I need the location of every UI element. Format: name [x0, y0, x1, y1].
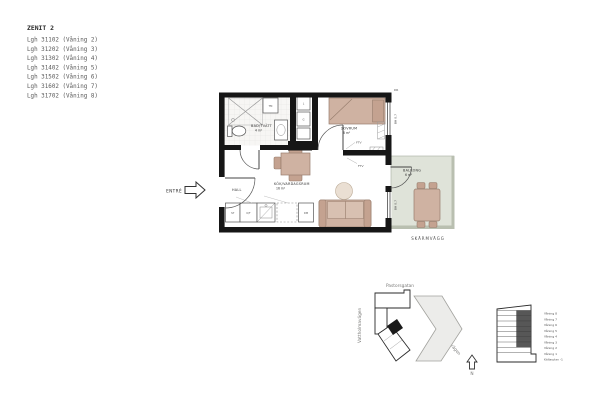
- tv-outlet-label: FTV: [358, 164, 365, 168]
- highlighted-floors: [517, 311, 532, 348]
- site-building-main: [375, 290, 410, 361]
- door-mark-label: DR: [394, 88, 398, 92]
- sill-height-label: BH 0,7: [394, 200, 398, 210]
- balcony-chair: [417, 222, 425, 228]
- washbasin: [275, 120, 288, 140]
- floor-label: Våning 7: [544, 316, 557, 321]
- bedroom-window: [386, 103, 392, 136]
- washing-machine: TM: [263, 98, 278, 113]
- kitchen-sink: [257, 203, 275, 222]
- cleaning-cabinet-label: ST: [231, 211, 235, 215]
- dishwasher: DM: [299, 203, 314, 222]
- floor-label: Våning 4: [544, 334, 557, 339]
- floor-label: Våning 6: [544, 322, 557, 327]
- bathroom: TM: [225, 98, 291, 146]
- kitchen-living-area: 16 m²: [276, 187, 286, 191]
- optional-unit: [277, 203, 297, 222]
- toilet: [228, 126, 246, 137]
- balcony-chair: [429, 183, 437, 189]
- site-plan: Pastorsgatan Vattholmavägen Åbyvägen N: [357, 283, 477, 377]
- dishwasher-label: DM: [304, 211, 308, 215]
- bedroom-label: SOVRUM: [341, 127, 357, 131]
- legend-apartment: Lgh 31302 (Våning 4): [27, 55, 98, 62]
- balcony-label: BALKONG: [403, 169, 421, 173]
- sill-height-label: BH 0,7: [394, 114, 398, 124]
- legend-apartment: Lgh 31202 (Våning 3): [27, 46, 98, 53]
- floor-label: Våning 5: [544, 328, 557, 333]
- elevation-floor-labels: Våning 8 Våning 7 Våning 6 Våning 5 Våni…: [544, 311, 563, 362]
- balcony-area: 6 m²: [405, 173, 413, 177]
- hall-label: HALL: [232, 188, 242, 192]
- kitchen-living-label: KÖK/VARDAGSRUM: [274, 181, 310, 186]
- bathroom-door: [240, 150, 259, 169]
- floor-label: Våning 1: [544, 351, 557, 356]
- tv-outlet-label: FTV: [356, 141, 363, 145]
- balcony-table: [414, 189, 440, 221]
- north-arrow: N: [467, 355, 477, 377]
- legend-apartment: Lgh 31102 (Våning 2): [27, 37, 98, 44]
- floor-label: Våning 3: [544, 339, 557, 344]
- balcony-chair: [417, 183, 425, 189]
- entrance-label: ENTRÉ: [166, 189, 182, 194]
- balcony-chair: [429, 222, 437, 228]
- legend-apartment: Lgh 31702 (Våning 8): [27, 92, 98, 99]
- dining-table: [274, 148, 310, 182]
- bed: [329, 98, 385, 124]
- north-arrow-icon: [467, 355, 477, 369]
- building-elevation: Våning 8 Våning 7 Våning 6 Våning 5 Våni…: [497, 305, 563, 362]
- wardrobe-label: G: [302, 118, 304, 122]
- legend-apartment: Lgh 31402 (Våning 5): [27, 64, 98, 71]
- bedroom-area: 8 m²: [343, 131, 351, 135]
- north-label: N: [470, 371, 473, 377]
- screen-wall-label: SKÄRMVÄGG: [411, 236, 445, 241]
- street-west-label: Vattholmavägen: [357, 307, 363, 343]
- apartment-legend: ZENIT 2 Lgh 31102 (Våning 2) Lgh 31202 (…: [27, 24, 98, 99]
- closet-strip: L G: [297, 96, 310, 139]
- sofa: [319, 200, 371, 227]
- floor-label: Våning 2: [544, 345, 557, 350]
- entrance-marker: ENTRÉ: [166, 182, 205, 198]
- balcony-screen-right: [452, 156, 455, 228]
- floor-plan: TM L G ST K/F DM: [166, 88, 454, 241]
- floor-label: Källarplan -1: [544, 358, 563, 362]
- floorplan-sheet: ZENIT 2 Lgh 31102 (Våning 2) Lgh 31202 (…: [0, 0, 600, 400]
- street-north-label: Pastorsgatan: [386, 283, 414, 289]
- round-rug: [336, 183, 353, 200]
- floor-label: Våning 8: [544, 311, 557, 316]
- drawing-canvas: ZENIT 2 Lgh 31102 (Våning 2) Lgh 31202 (…: [0, 0, 600, 400]
- bedroom-radiator: [378, 122, 385, 139]
- living-room-window: [386, 192, 392, 218]
- kitchen-run: ST K/F DM: [226, 196, 314, 222]
- bedroom-door: [318, 125, 343, 150]
- fridge-freezer-label: K/F: [246, 211, 251, 215]
- legend-apartment: Lgh 31502 (Våning 6): [27, 74, 98, 81]
- cabinet-leader-lines: [236, 196, 288, 203]
- bathroom-area: 4 m²: [255, 129, 263, 133]
- legend-title: ZENIT 2: [27, 24, 54, 32]
- entrance-arrow-icon: [185, 182, 205, 198]
- washing-machine-label: TM: [269, 104, 273, 108]
- legend-apartment: Lgh 31602 (Våning 7): [27, 83, 98, 90]
- bathroom-label: BAD/TVÄTT: [251, 123, 273, 128]
